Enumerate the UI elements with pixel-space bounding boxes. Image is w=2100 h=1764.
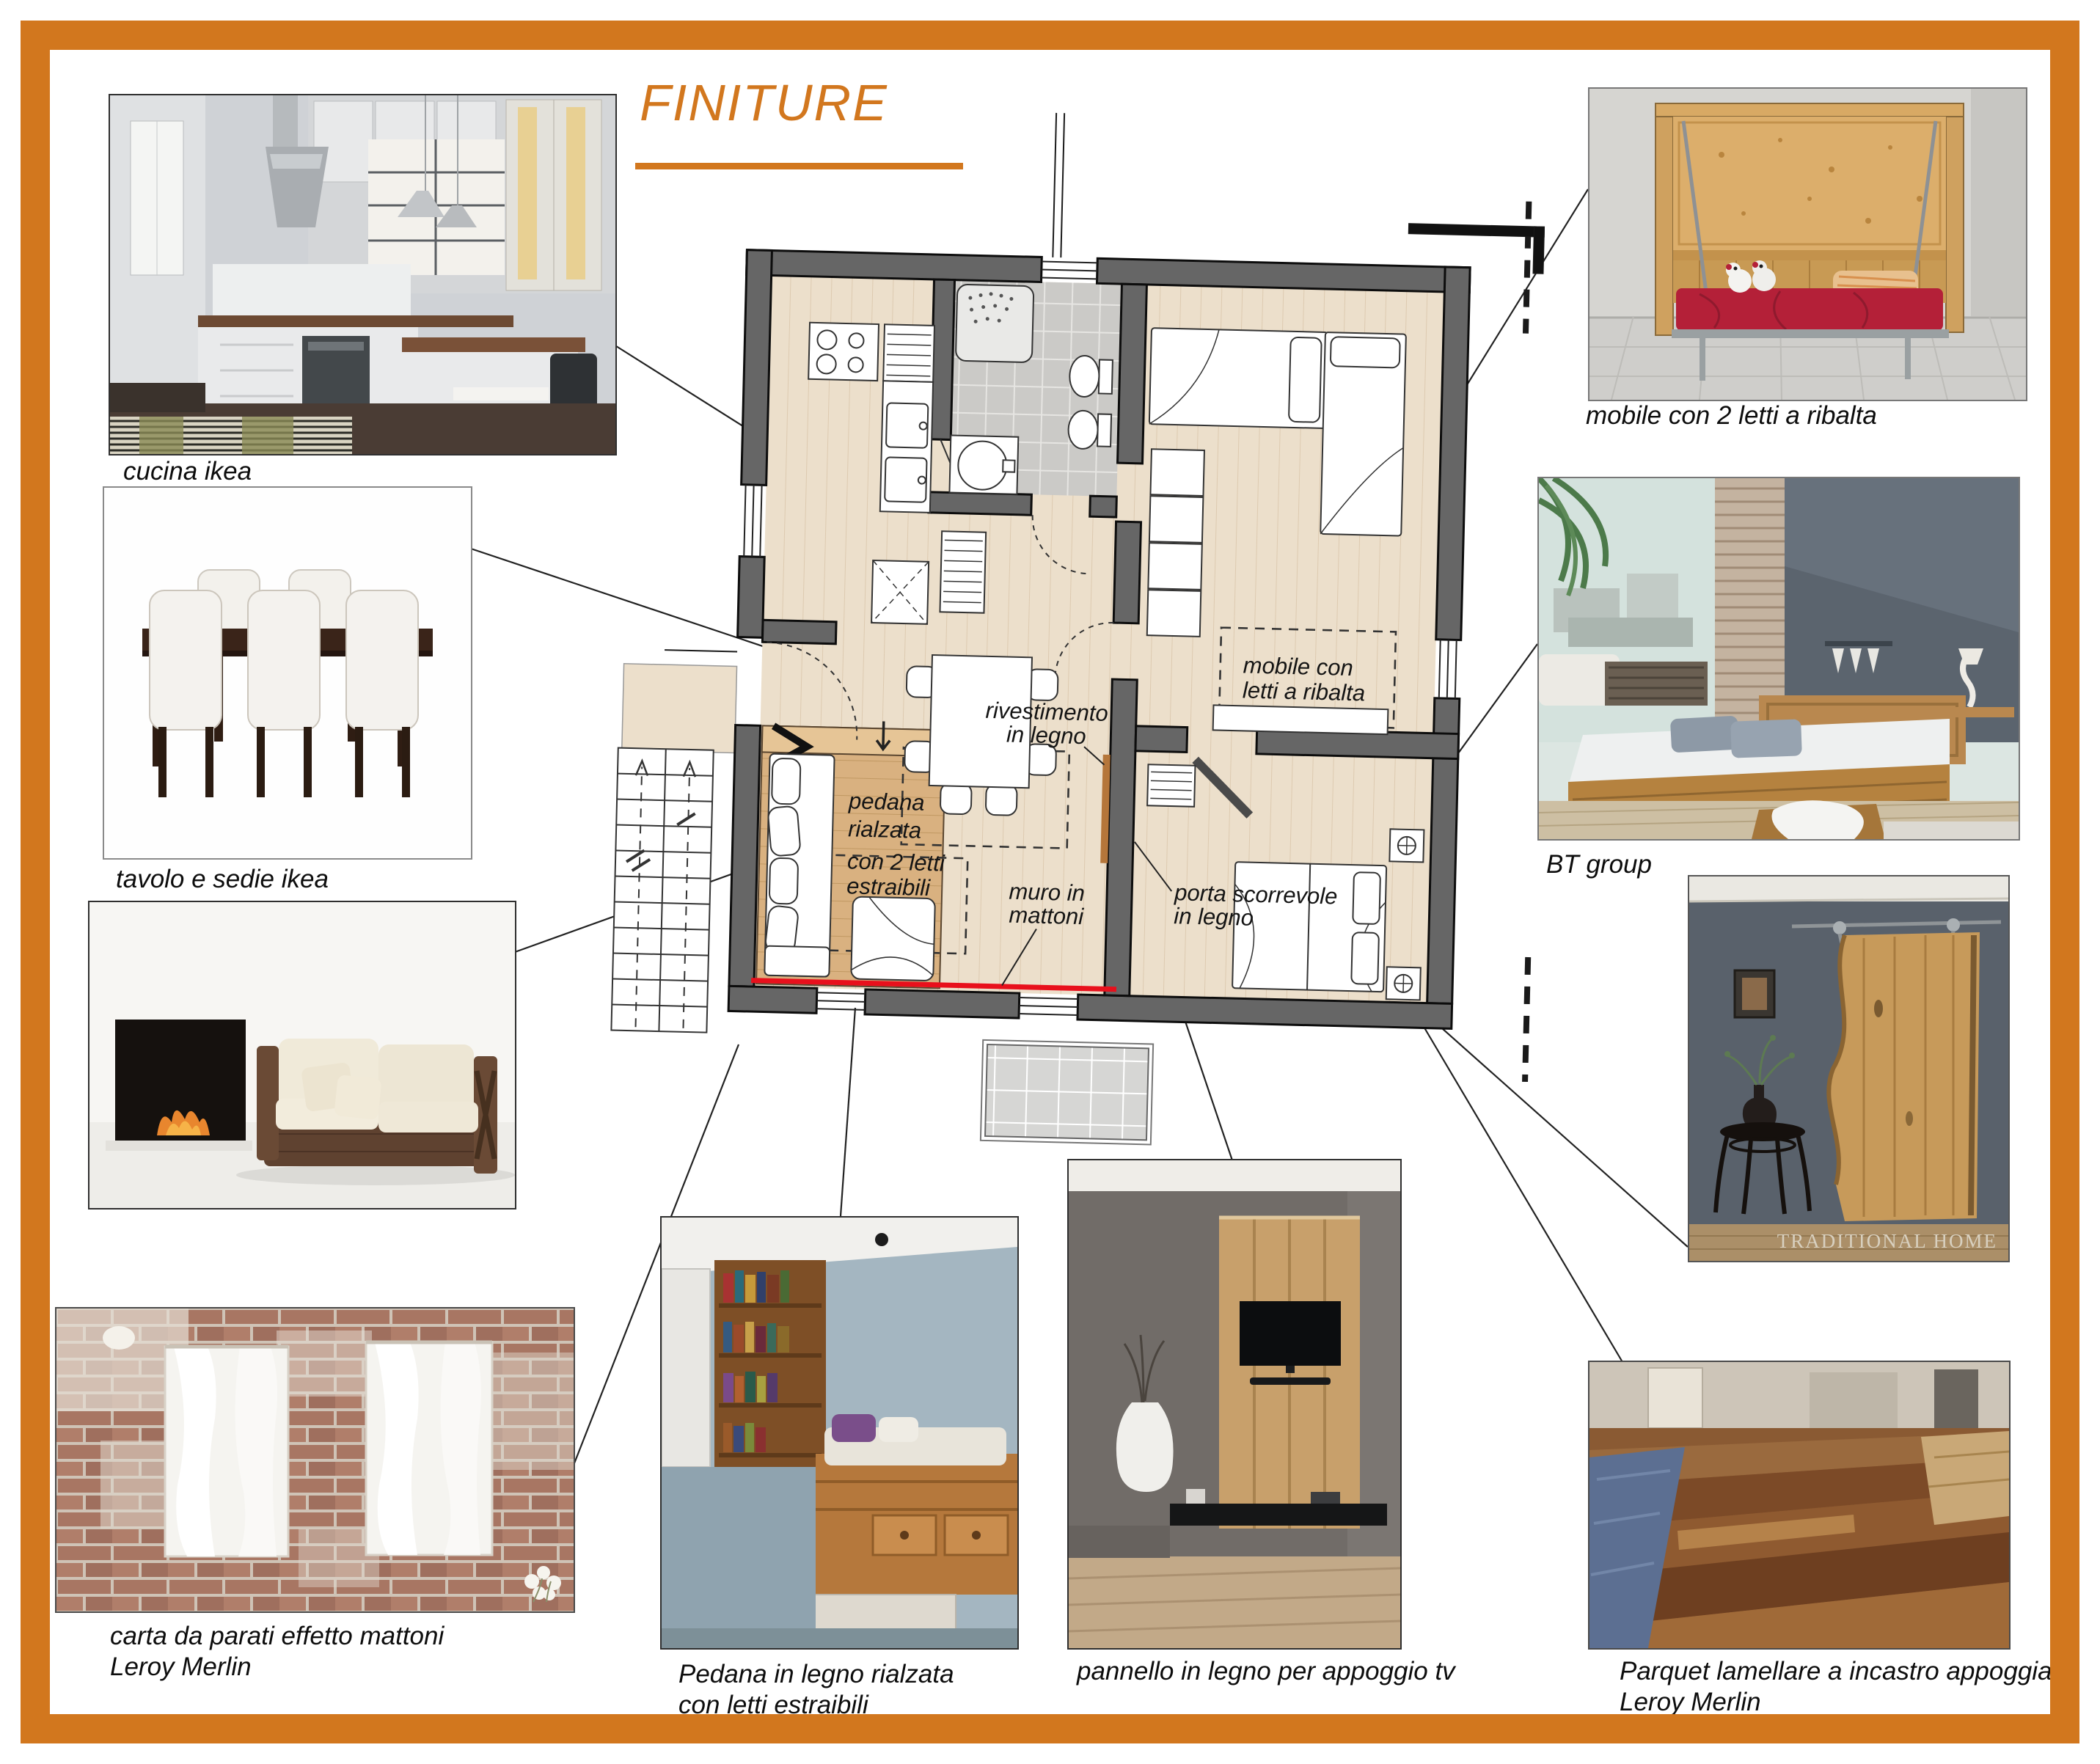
- caption-carta: carta da parati effetto mattoni Leroy Me…: [110, 1621, 444, 1683]
- caption-pannello: pannello in legno per appoggio tv: [1077, 1656, 1455, 1687]
- caption-cucina: cucina ikea: [123, 456, 252, 487]
- svg-text:estraibili: estraibili: [846, 873, 932, 901]
- photo-tavolo-sedie: [103, 486, 472, 860]
- photo-bt-group: [1537, 477, 2020, 841]
- photo-watermark: TRADITIONAL HOME: [1777, 1230, 1997, 1252]
- svg-text:mattoni: mattoni: [1009, 902, 1085, 930]
- svg-text:rialzata: rialzata: [848, 816, 922, 843]
- entry-landing: [622, 664, 737, 753]
- caption-pedana: Pedana in legno rialzata con letti estra…: [678, 1659, 954, 1721]
- svg-text:pedana: pedana: [848, 788, 925, 816]
- photo-cucina-ikea: [109, 94, 617, 455]
- photo-porta-legno: TRADITIONAL HOME: [1688, 875, 2010, 1262]
- photo-pannello-tv: [1067, 1159, 1402, 1650]
- caption-bt-group: BT group: [1546, 849, 1652, 880]
- photo-letto-ribalta: [1588, 87, 2027, 401]
- photo-pedana-legno: [660, 1216, 1019, 1650]
- caption-tavolo: tavolo e sedie ikea: [116, 864, 329, 895]
- stairs: [611, 748, 713, 1033]
- caption-mobile: mobile con 2 letti a ribalta: [1586, 400, 1877, 431]
- presentation-board: FINITURE: [0, 0, 2100, 1764]
- photo-parquet: [1588, 1361, 2011, 1650]
- svg-text:in legno: in legno: [1006, 722, 1086, 750]
- photo-carta-parati: [55, 1307, 575, 1613]
- svg-text:in legno: in legno: [1174, 903, 1254, 931]
- svg-text:con 2 letti: con 2 letti: [847, 848, 946, 876]
- svg-text:letti a ribalta: letti a ribalta: [1243, 677, 1366, 706]
- floor-plan: mobile con letti a ribalta rivestimento …: [605, 209, 1559, 1167]
- title-underline: [635, 163, 963, 169]
- page-title: FINITURE: [640, 73, 888, 132]
- svg-text:mobile con: mobile con: [1243, 652, 1353, 681]
- balcony: [981, 1040, 1153, 1145]
- photo-divano: [88, 901, 516, 1209]
- caption-parquet: Parquet lamellare a incastro appoggiato …: [1620, 1656, 2074, 1718]
